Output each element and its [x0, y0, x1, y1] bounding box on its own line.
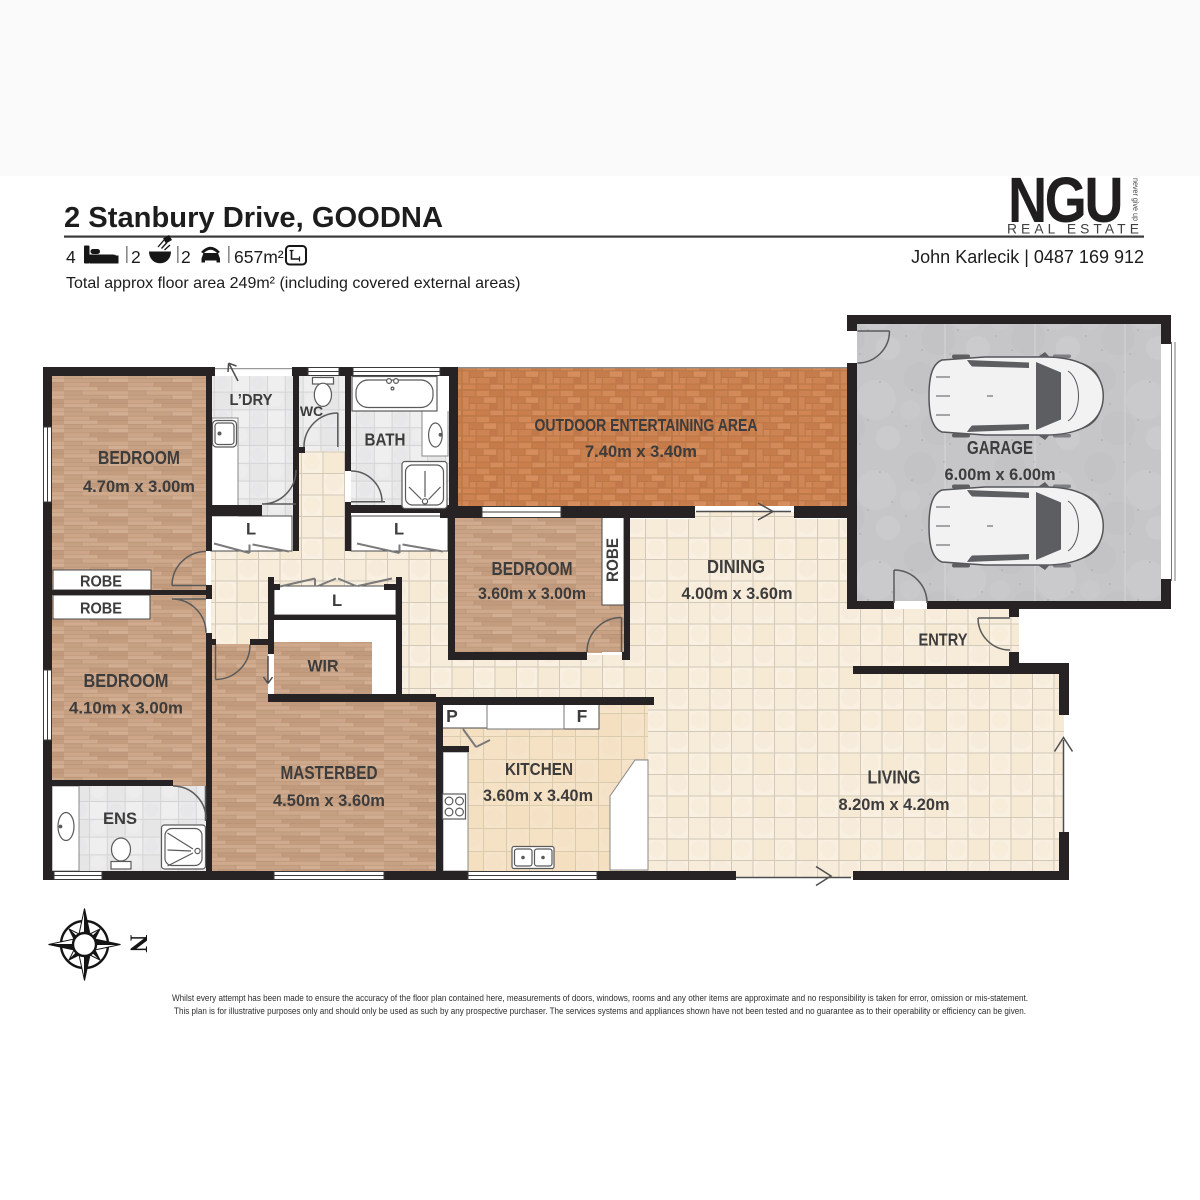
svg-text:OUTDOOR ENTERTAINING AREA: OUTDOOR ENTERTAINING AREA: [535, 415, 758, 435]
svg-text:John Karlecik | 0487 169 912: John Karlecik | 0487 169 912: [911, 247, 1144, 267]
svg-text:L: L: [246, 521, 256, 539]
svg-text:ENS: ENS: [103, 809, 137, 828]
svg-text:This plan is for illustrative: This plan is for illustrative purposes o…: [174, 1006, 1026, 1016]
svg-text:never give up: never give up: [1131, 178, 1141, 221]
svg-text:ROBE: ROBE: [604, 538, 622, 582]
svg-text:REAL ESTATE: REAL ESTATE: [1007, 222, 1143, 237]
svg-text:2 Stanbury Drive, GOODNA: 2 Stanbury Drive, GOODNA: [64, 202, 443, 234]
svg-text:LIVING: LIVING: [868, 767, 921, 788]
svg-text:ROBE: ROBE: [80, 601, 122, 618]
svg-text:Total approx floor area 249m²: Total approx floor area 249m² (including…: [66, 275, 520, 292]
svg-text:4.10m x 3.00m: 4.10m x 3.00m: [69, 699, 183, 718]
svg-text:BEDROOM: BEDROOM: [98, 447, 180, 468]
svg-text:BEDROOM: BEDROOM: [84, 670, 169, 691]
svg-text:3.60m x 3.40m: 3.60m x 3.40m: [483, 786, 593, 805]
svg-text:DINING: DINING: [707, 556, 765, 577]
svg-text:L: L: [394, 521, 404, 539]
svg-text:F: F: [577, 706, 588, 726]
svg-text:6.00m x 6.00m: 6.00m x 6.00m: [945, 465, 1056, 484]
svg-text:BEDROOM: BEDROOM: [492, 558, 573, 579]
svg-text:P: P: [446, 706, 458, 726]
svg-text:WC: WC: [300, 403, 323, 419]
svg-text:ROBE: ROBE: [80, 574, 122, 591]
svg-text:L’DRY: L’DRY: [230, 392, 274, 409]
svg-text:4: 4: [66, 247, 76, 267]
svg-text:2: 2: [181, 247, 191, 267]
svg-text:GARAGE: GARAGE: [967, 437, 1033, 458]
svg-text:4.00m x 3.60m: 4.00m x 3.60m: [682, 584, 793, 603]
svg-text:4.70m x 3.00m: 4.70m x 3.00m: [83, 477, 195, 496]
svg-text:L: L: [332, 592, 342, 610]
svg-text:2: 2: [131, 247, 141, 267]
svg-text:KITCHEN: KITCHEN: [505, 759, 573, 779]
svg-text:657m²: 657m²: [234, 247, 284, 267]
svg-text:MASTERBED: MASTERBED: [281, 762, 378, 783]
svg-text:BATH: BATH: [365, 430, 406, 450]
svg-text:N: N: [125, 934, 152, 952]
svg-text:4.50m x 3.60m: 4.50m x 3.60m: [273, 791, 385, 810]
svg-text:7.40m x 3.40m: 7.40m x 3.40m: [585, 442, 697, 461]
svg-text:8.20m x 4.20m: 8.20m x 4.20m: [839, 795, 950, 814]
svg-text:ENTRY: ENTRY: [919, 630, 968, 650]
svg-text:WIR: WIR: [308, 657, 339, 676]
svg-text:3.60m x 3.00m: 3.60m x 3.00m: [478, 584, 586, 603]
svg-text:Whilst every attempt has been: Whilst every attempt has been made to en…: [172, 993, 1028, 1003]
